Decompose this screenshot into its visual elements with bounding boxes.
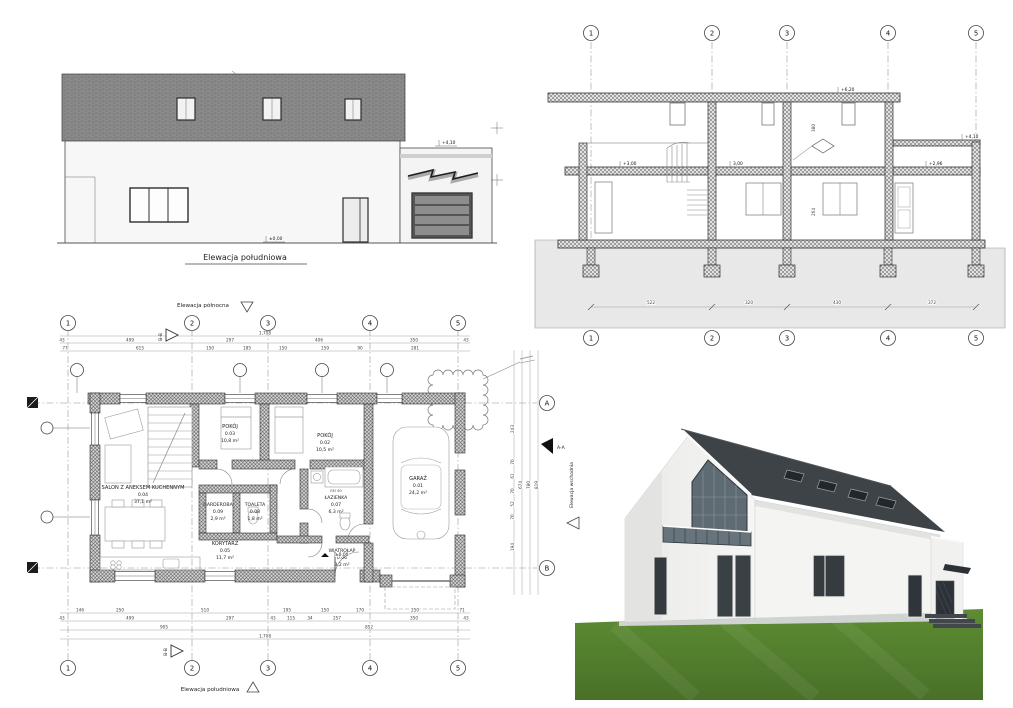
room-garaz: GARAŻ — [409, 475, 427, 482]
entry-door — [343, 198, 368, 242]
svg-text:5: 5 — [456, 665, 460, 673]
ground-mass — [535, 240, 1005, 328]
svg-text:406: 406 — [315, 338, 323, 343]
wall-grid3 — [783, 102, 791, 240]
garage-annex-3d — [931, 537, 971, 622]
garage-door — [412, 193, 472, 238]
ground-floor-slab — [558, 240, 985, 248]
sofa — [105, 409, 144, 483]
wall-grid4 — [885, 102, 893, 240]
annex-roof-slab — [893, 140, 980, 146]
level-annex-roof: +4,10 — [965, 134, 979, 140]
grid-5: 5 — [974, 30, 978, 38]
svg-text:350: 350 — [410, 338, 418, 343]
svg-text:A-A: A-A — [557, 445, 566, 451]
svg-text:70: 70 — [510, 459, 515, 465]
svg-text:250: 250 — [116, 608, 124, 613]
svg-text:10,8 m²: 10,8 m² — [221, 438, 239, 444]
dim-vertical-upper: 380 — [811, 124, 816, 132]
wall-annex-right — [972, 142, 980, 240]
svg-text:5: 5 — [456, 320, 460, 328]
svg-text:297: 297 — [226, 616, 234, 621]
plan-dims-top: 1,708 43 499 297 406 350 43 77 615 150 1… — [59, 331, 470, 352]
svg-text:37,1 m²: 37,1 m² — [134, 499, 152, 505]
bathtub — [325, 467, 363, 487]
level-top-label: +4,10 — [442, 140, 456, 146]
upper-windows — [670, 103, 855, 125]
elevation-title-block: Elewacja południowa — [185, 253, 307, 264]
svg-text:70: 70 — [510, 514, 515, 520]
svg-text:905: 905 — [160, 625, 168, 630]
svg-text:819: 819 — [534, 481, 539, 489]
south-elevation-arrow — [247, 682, 259, 692]
window-symbol — [120, 395, 146, 403]
svg-text:1,8 m²: 1,8 m² — [247, 516, 262, 522]
section-marker-aa: A-A — [541, 438, 566, 454]
svg-text:1: 1 — [66, 320, 70, 328]
elevation-drawing: +4,10 ±0,00 — [57, 71, 503, 243]
window-markers-top — [71, 364, 394, 394]
svg-text:90: 90 — [357, 346, 363, 351]
window-symbol — [307, 395, 337, 403]
svg-text:24,2 m²: 24,2 m² — [409, 490, 427, 496]
dim-top-total: 1,708 — [259, 331, 271, 336]
window-symbol — [225, 395, 255, 403]
level-zero-marker: ±0,00 — [321, 552, 349, 558]
svg-text:0.05: 0.05 — [220, 548, 230, 554]
section-grid-bubbles-top: 1 2 3 4 5 — [584, 26, 984, 41]
left-axis-markers — [27, 397, 90, 573]
svg-text:3,2 m²: 3,2 m² — [334, 562, 349, 568]
svg-text:159: 159 — [321, 346, 329, 351]
svg-text:185: 185 — [243, 346, 251, 351]
window-symbol — [205, 572, 235, 581]
svg-text:4: 4 — [368, 320, 372, 328]
svg-text:257: 257 — [333, 616, 341, 621]
floor-slab-mid — [712, 167, 893, 175]
svg-text:0.01: 0.01 — [413, 483, 423, 489]
annex-floor-slab — [893, 167, 980, 175]
detail-marker-diamond — [793, 139, 834, 160]
grid-row-a: A — [545, 400, 550, 408]
svg-text:34: 34 — [307, 616, 313, 621]
svg-text:195: 195 — [283, 608, 291, 613]
washing-machine — [311, 471, 323, 483]
svg-text:150: 150 — [279, 346, 287, 351]
house-render — [575, 429, 983, 700]
svg-text:150: 150 — [206, 346, 214, 351]
plan-title-north: Elewacja północna — [177, 302, 253, 312]
svg-text:52: 52 — [510, 501, 515, 507]
wall-grid2 — [708, 102, 716, 240]
svg-text:0.08: 0.08 — [250, 509, 260, 515]
roof-slab — [548, 93, 900, 102]
fire-rating-label: REI 60 — [330, 489, 342, 493]
section-marker-bb-top: B-B — [158, 329, 178, 341]
front-window — [813, 555, 845, 597]
svg-text:3: 3 — [266, 320, 270, 328]
svg-text:281: 281 — [411, 346, 419, 351]
roof-window — [177, 98, 195, 120]
svg-text:43: 43 — [463, 616, 469, 621]
svg-text:499: 499 — [126, 616, 134, 621]
svg-text:250: 250 — [411, 608, 419, 613]
svg-text:0.09: 0.09 — [213, 509, 223, 515]
dim-320: 320 — [745, 300, 753, 305]
level-floor-mid: 3,00 — [733, 161, 743, 167]
svg-text:2,9 m²: 2,9 m² — [210, 516, 225, 522]
svg-text:2: 2 — [190, 320, 194, 328]
svg-text:70: 70 — [510, 488, 515, 494]
window-symbol — [92, 500, 99, 535]
grid-5: 5 — [974, 335, 978, 343]
svg-text:6,3 m²: 6,3 m² — [328, 509, 343, 515]
plan-grid-bubbles-bottom: 1 2 3 4 5 B-B — [61, 645, 466, 676]
toilet-bathroom — [340, 513, 350, 530]
svg-text:194: 194 — [510, 543, 515, 551]
title-north: Elewacja północna — [177, 302, 229, 309]
elevation-south-title: Elewacja południowa — [203, 253, 287, 262]
window-symbol — [377, 395, 402, 403]
plan-level-zero: ±0,00 — [335, 552, 349, 558]
svg-text:61: 61 — [510, 473, 515, 479]
panel-section: +6,20 +3,00 3,00 +2,96 +4,10 380 264 522… — [535, 20, 1013, 355]
svg-text:146: 146 — [76, 608, 84, 613]
window-symbol — [92, 413, 99, 445]
room-lazienka: ŁAZIENKA — [324, 495, 348, 501]
plan-dims-bottom: 146 250 510 195 150 170 250 71 43 499 29… — [59, 608, 470, 640]
svg-text:0.07: 0.07 — [331, 502, 341, 508]
window-symbol — [115, 572, 155, 581]
room-korytarz: KORYTARZ — [212, 541, 239, 547]
svg-text:B-B: B-B — [163, 648, 169, 656]
svg-text:43: 43 — [59, 616, 65, 621]
svg-text:115: 115 — [287, 616, 295, 621]
grid-4: 4 — [886, 335, 890, 343]
bed-room02 — [275, 407, 303, 453]
level-marker-top: +4,10 — [435, 140, 457, 146]
svg-text:150: 150 — [321, 608, 329, 613]
svg-text:243: 243 — [510, 425, 515, 433]
room-pokoj-02: POKÓJ — [317, 432, 333, 439]
stairs — [667, 142, 707, 215]
grid-3: 3 — [785, 30, 789, 38]
grid-4: 4 — [886, 30, 890, 38]
grid-1: 1 — [589, 30, 593, 38]
dim-vertical-lower: 264 — [811, 208, 816, 216]
svg-text:43: 43 — [59, 338, 65, 343]
svg-text:4: 4 — [368, 665, 372, 673]
level-roof: +6,20 — [841, 87, 855, 93]
svg-text:499: 499 — [126, 338, 134, 343]
svg-text:11,7 m²: 11,7 m² — [216, 555, 234, 561]
driveway-apron — [385, 587, 455, 609]
panel-3d-render — [575, 385, 1012, 705]
svg-text:674: 674 — [518, 481, 523, 489]
level-floor-left: +3,00 — [623, 161, 637, 167]
svg-text:3: 3 — [266, 665, 270, 673]
svg-text:0.04: 0.04 — [138, 492, 148, 498]
svg-text:615: 615 — [136, 346, 144, 351]
svg-text:1,708: 1,708 — [259, 634, 271, 639]
plan-title-south: Elewacja południowa — [181, 682, 259, 693]
section-marker-bb-bottom: B-B — [163, 645, 183, 657]
svg-text:B-B: B-B — [158, 333, 164, 341]
roof-window — [345, 99, 361, 120]
svg-text:780: 780 — [526, 481, 531, 489]
level-zero-label: ±0,00 — [269, 236, 283, 242]
stairs — [148, 407, 192, 487]
room-toaleta: TOALETA — [244, 502, 266, 508]
car — [393, 427, 449, 539]
svg-text:1: 1 — [66, 665, 70, 673]
drawing-sheet: { "drawing": { "elevation_south": { "tit… — [0, 0, 1013, 708]
svg-text:852: 852 — [365, 625, 373, 630]
triple-window — [130, 188, 188, 222]
svg-text:71: 71 — [459, 608, 465, 613]
grid-2: 2 — [710, 335, 714, 343]
panel-elevation-south: +4,10 ±0,00 Elewacja południowa — [35, 58, 505, 270]
plan-right-side: 243 70 61 70 52 70 194 674 780 819 A B A… — [510, 350, 579, 595]
svg-text:77: 77 — [62, 346, 68, 351]
svg-text:350: 350 — [410, 616, 418, 621]
dim-430: 430 — [833, 300, 841, 305]
grid-3: 3 — [785, 335, 789, 343]
wall-left — [579, 143, 587, 240]
plan-grid-bubbles-top: 1 2 3 4 5 B-B — [61, 316, 466, 342]
roof-window — [263, 98, 281, 120]
svg-text:43: 43 — [463, 338, 469, 343]
garage-annex — [400, 148, 492, 243]
svg-text:43: 43 — [270, 616, 276, 621]
entry-door — [908, 575, 922, 617]
svg-text:10,5 m²: 10,5 m² — [316, 447, 334, 453]
dining-table — [105, 500, 165, 548]
svg-text:Elewacja południowa: Elewacja południowa — [181, 687, 240, 693]
dim-522: 522 — [647, 300, 655, 305]
grid-2: 2 — [710, 30, 714, 38]
room-salon: SALON Z ANEKSEM KUCHENNYM — [102, 485, 185, 491]
svg-text:2: 2 — [190, 665, 194, 673]
grid-row-b: B — [545, 565, 550, 573]
panel-floor-plan: Elewacja północna 1,708 43 499 297 406 3… — [25, 295, 603, 705]
svg-text:510: 510 — [201, 608, 209, 613]
svg-text:0.02: 0.02 — [320, 440, 330, 446]
section-grid-bubbles-bottom: 1 2 3 4 5 — [584, 331, 984, 346]
dim-372: 372 — [928, 300, 936, 305]
svg-text:170: 170 — [356, 608, 364, 613]
ground-openings — [595, 182, 913, 233]
height-marks — [491, 122, 503, 186]
north-elevation-arrow — [241, 302, 253, 312]
svg-text:0.03: 0.03 — [225, 431, 235, 437]
svg-text:297: 297 — [226, 338, 234, 343]
room-pokoj-03: POKÓJ — [222, 423, 238, 430]
level-annex-floor: +2,96 — [929, 161, 943, 167]
room-garderoba: GARDEROBA — [203, 502, 233, 508]
